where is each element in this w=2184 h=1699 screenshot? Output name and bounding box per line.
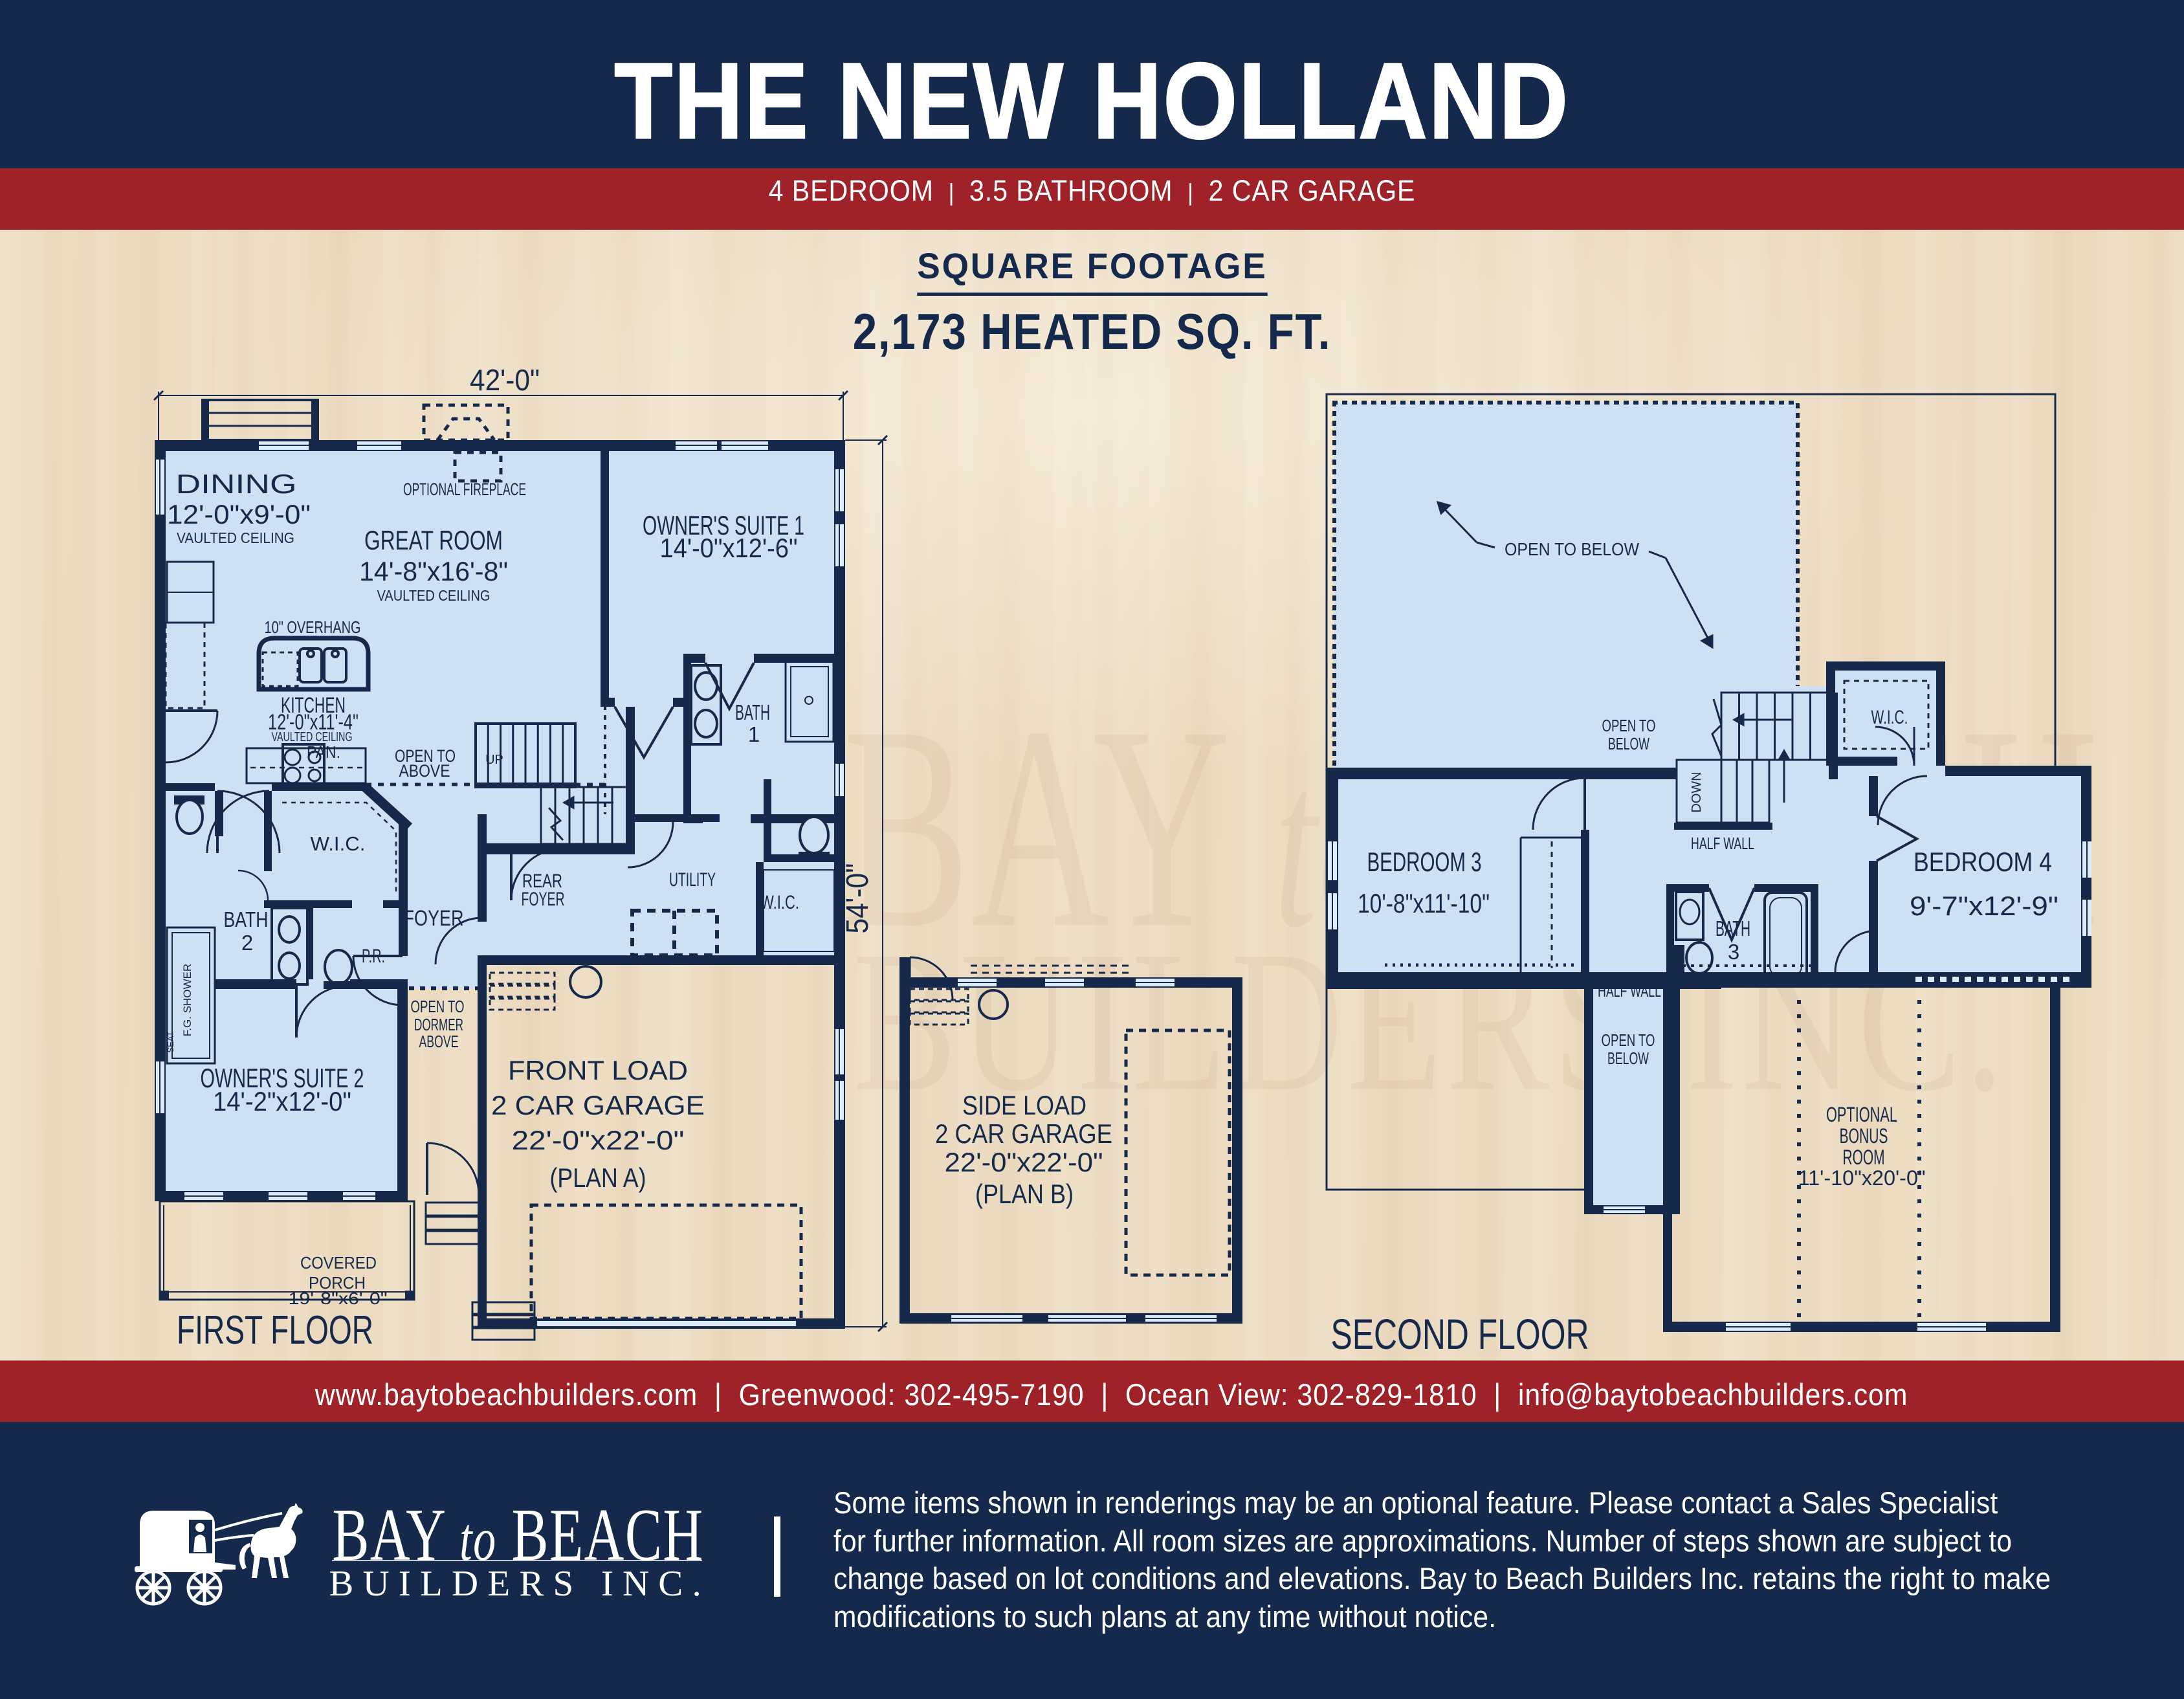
svg-text:12'-0"x9'-0": 12'-0"x9'-0" [167, 499, 311, 529]
svg-text:(PLAN B): (PLAN B) [975, 1179, 1074, 1209]
svg-text:PAN.: PAN. [307, 742, 340, 762]
svg-text:FRONT LOAD: FRONT LOAD [508, 1055, 688, 1085]
svg-text:2 CAR GARAGE: 2 CAR GARAGE [935, 1118, 1112, 1149]
svg-text:SEAT: SEAT [166, 1031, 175, 1052]
svg-text:COVERED: COVERED [300, 1253, 377, 1272]
svg-text:DOWN: DOWN [1690, 772, 1704, 812]
svg-text:3: 3 [1728, 940, 1739, 964]
svg-text:GREAT ROOM: GREAT ROOM [364, 525, 503, 555]
svg-text:2 CAR GARAGE: 2 CAR GARAGE [491, 1090, 705, 1120]
svg-text:ROOM: ROOM [1843, 1146, 1885, 1169]
svg-text:22'-0"x22'-0": 22'-0"x22'-0" [945, 1147, 1103, 1177]
svg-text:W.I.C.: W.I.C. [311, 832, 366, 855]
svg-text:FOYER: FOYER [404, 906, 464, 931]
svg-text:ABOVE: ABOVE [419, 1032, 459, 1051]
svg-text:14'-0"x12'-6": 14'-0"x12'-6" [660, 533, 798, 563]
svg-text:BATH: BATH [224, 907, 269, 931]
svg-text:ABOVE: ABOVE [399, 761, 450, 781]
svg-text:VAULTED CEILING: VAULTED CEILING [177, 529, 294, 546]
svg-text:P.R.: P.R. [362, 946, 385, 967]
svg-text:BELOW: BELOW [1607, 1049, 1649, 1068]
svg-text:SECOND FLOOR: SECOND FLOOR [1331, 1310, 1589, 1358]
svg-text:OPTIONAL FIREPLACE: OPTIONAL FIREPLACE [403, 480, 526, 499]
svg-text:OPEN TO: OPEN TO [1602, 716, 1656, 735]
svg-text:HALF WALL: HALF WALL [1598, 981, 1661, 1001]
svg-text:BONUS: BONUS [1840, 1124, 1888, 1148]
svg-text:BEDROOM 4: BEDROOM 4 [1914, 847, 2052, 877]
svg-text:OPTIONAL: OPTIONAL [1826, 1103, 1897, 1126]
svg-text:OPEN TO: OPEN TO [411, 997, 465, 1016]
svg-text:(PLAN A): (PLAN A) [550, 1162, 646, 1193]
svg-text:2: 2 [241, 931, 253, 955]
svg-text:UP: UP [485, 753, 503, 767]
svg-text:10'-8"x11'-10": 10'-8"x11'-10" [1358, 888, 1490, 918]
svg-text:1: 1 [748, 722, 760, 746]
svg-text:F.G. SHOWER: F.G. SHOWER [181, 964, 193, 1036]
svg-text:FOYER: FOYER [522, 889, 565, 910]
svg-text:W.I.C.: W.I.C. [1871, 707, 1908, 728]
svg-text:W.I.C.: W.I.C. [760, 892, 799, 913]
svg-text:SIDE LOAD: SIDE LOAD [962, 1090, 1086, 1120]
svg-text:14'-2"x12'-0": 14'-2"x12'-0" [213, 1086, 351, 1116]
svg-text:BELOW: BELOW [1608, 734, 1649, 753]
svg-text:HALF WALL: HALF WALL [1691, 834, 1754, 853]
svg-text:19'-8"x6'-0": 19'-8"x6'-0" [289, 1289, 388, 1308]
svg-text:OPEN TO BELOW: OPEN TO BELOW [1505, 539, 1640, 559]
svg-text:BATH: BATH [735, 700, 770, 724]
svg-text:10" OVERHANG: 10" OVERHANG [265, 617, 361, 637]
svg-text:42'-0": 42'-0" [470, 363, 540, 397]
svg-text:11'-10"x20'-0": 11'-10"x20'-0" [1798, 1166, 1926, 1190]
svg-text:22'-0"x22'-0": 22'-0"x22'-0" [512, 1125, 685, 1155]
svg-text:BEDROOM 3: BEDROOM 3 [1367, 847, 1482, 877]
svg-text:BATH: BATH [1715, 916, 1750, 940]
svg-text:VAULTED CEILING: VAULTED CEILING [377, 587, 491, 604]
svg-text:FIRST FLOOR: FIRST FLOOR [177, 1308, 373, 1353]
svg-text:14'-8"x16'-8": 14'-8"x16'-8" [359, 556, 508, 586]
svg-text:9'-7"x12'-9": 9'-7"x12'-9" [1910, 891, 2058, 921]
svg-text:54'-0": 54'-0" [841, 863, 875, 934]
svg-text:OPEN TO: OPEN TO [1602, 1030, 1655, 1050]
svg-text:UTILITY: UTILITY [669, 869, 716, 891]
svg-text:DINING: DINING [176, 469, 297, 499]
